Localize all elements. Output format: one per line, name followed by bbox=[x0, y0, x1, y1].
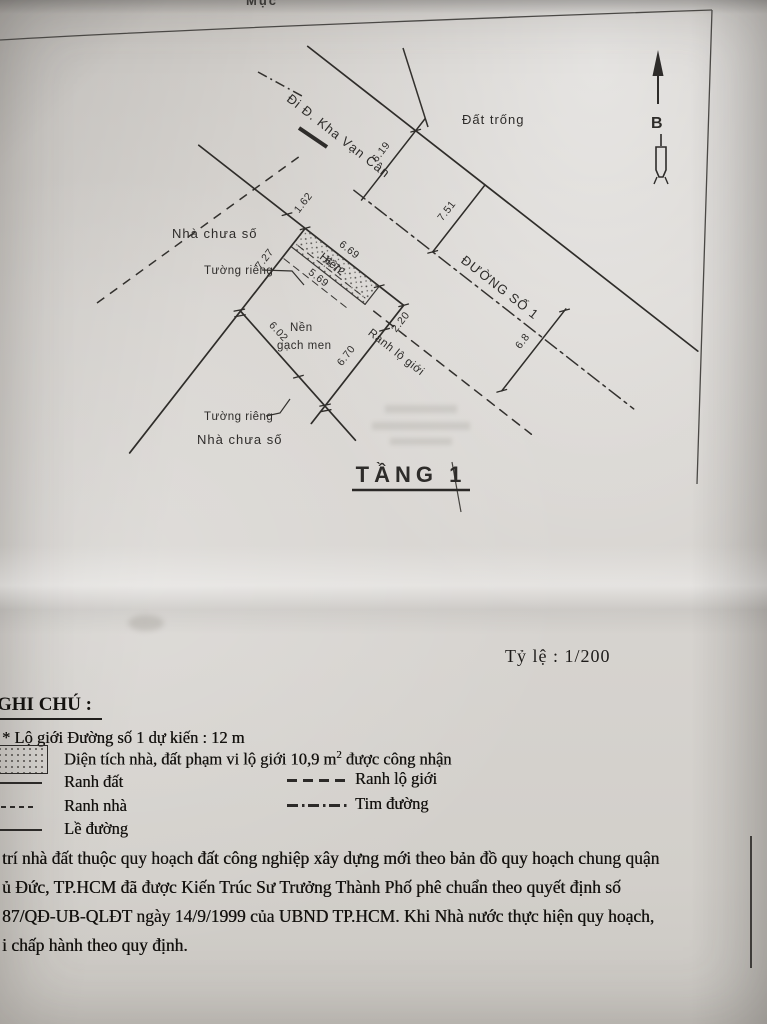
legend-swatch-le-duong bbox=[0, 829, 42, 831]
notes-line: ủ Đức, TP.HCM đã được Kiến Trúc Sư Trưởn… bbox=[2, 873, 764, 902]
scanned-survey-document: Mục B bbox=[0, 0, 767, 1024]
legend-swatch-ranh-lo-gioi bbox=[287, 779, 349, 782]
dim-751: 7.51 bbox=[435, 198, 458, 223]
legend-swatch-tim-duong bbox=[287, 804, 349, 807]
vacant-land-label: Đất trống bbox=[462, 112, 524, 127]
area-note-suffix: được công nhận bbox=[342, 750, 452, 769]
house-no-number-label-top: Nhà chưa số bbox=[172, 226, 257, 241]
north-label: B bbox=[651, 115, 663, 132]
photocopy-edge-line bbox=[750, 836, 752, 968]
legend-swatch-ranh-nha bbox=[0, 806, 36, 808]
dim-68: 6.8 bbox=[513, 331, 532, 351]
boundary-line-vacant-land bbox=[403, 48, 428, 127]
to-kha-van-can-label: Đi Đ. Kha Vạn Cân bbox=[284, 91, 393, 181]
notes-line: trí nhà đất thuộc quy hoạch đất công ngh… bbox=[2, 844, 764, 873]
legend-label-le-duong: Lề đường bbox=[64, 819, 128, 839]
faint-stamp bbox=[372, 405, 470, 445]
row-boundary-label: Ranh lộ giới bbox=[365, 327, 426, 378]
legend-swatch-ranh-dat bbox=[0, 782, 42, 784]
dim-619: 6.19 bbox=[370, 140, 393, 165]
site-plan-drawing: B bbox=[0, 0, 767, 630]
dim-162: 1.62 bbox=[292, 190, 315, 215]
house-no-number-label-bottom: Nhà chưa số bbox=[197, 432, 282, 447]
scale-label: Tỷ lệ : 1/200 bbox=[505, 646, 611, 667]
private-wall-label-bottom: Tường riêng bbox=[204, 411, 273, 423]
road-edge-northeast bbox=[308, 46, 698, 351]
notes-line: 87/QĐ-UB-QLĐT ngày 14/9/1999 của UBND TP… bbox=[2, 902, 764, 931]
legend-swatch-stipple bbox=[0, 745, 48, 774]
legend-area-note: Diện tích nhà, đất phạm vi lộ giới 10,9 … bbox=[64, 749, 452, 770]
legend-label-ranh-nha: Ranh nhà bbox=[64, 796, 127, 816]
private-wall-label-top: Tường riêng bbox=[204, 265, 273, 277]
notes-line: i chấp hành theo quy định. bbox=[2, 931, 764, 960]
tiled-floor-label-1: Nền bbox=[290, 322, 313, 334]
area-note-prefix: Diện tích nhà, đất phạm vi lộ giới 10,9 … bbox=[64, 750, 336, 769]
sheet-border-right bbox=[697, 10, 712, 484]
floor-title: TẦNG 1 bbox=[356, 462, 467, 487]
rotated-plan: Đi Đ. Kha Vạn Cân ĐƯỜNG SỐ 1 Ranh lộ giớ… bbox=[23, 19, 707, 630]
planning-notes: trí nhà đất thuộc quy hoạch đất công ngh… bbox=[2, 844, 764, 960]
legend-label-tim-duong: Tim đường bbox=[355, 794, 428, 814]
sheet-border-top bbox=[0, 10, 712, 40]
boundary-segment-68 bbox=[502, 309, 566, 391]
legend-label-ranh-dat: Ranh đất bbox=[64, 772, 123, 792]
legend-title: GHI CHÚ : bbox=[0, 694, 102, 720]
dim-670: 6.70 bbox=[335, 343, 358, 368]
tiled-floor-label-2: gạch men bbox=[277, 340, 332, 352]
dim-220: 2.20 bbox=[389, 310, 412, 335]
street1-label: ĐƯỜNG SỐ 1 bbox=[458, 252, 542, 322]
legend-label-ranh-lo-gioi: Ranh lộ giới bbox=[355, 769, 437, 789]
